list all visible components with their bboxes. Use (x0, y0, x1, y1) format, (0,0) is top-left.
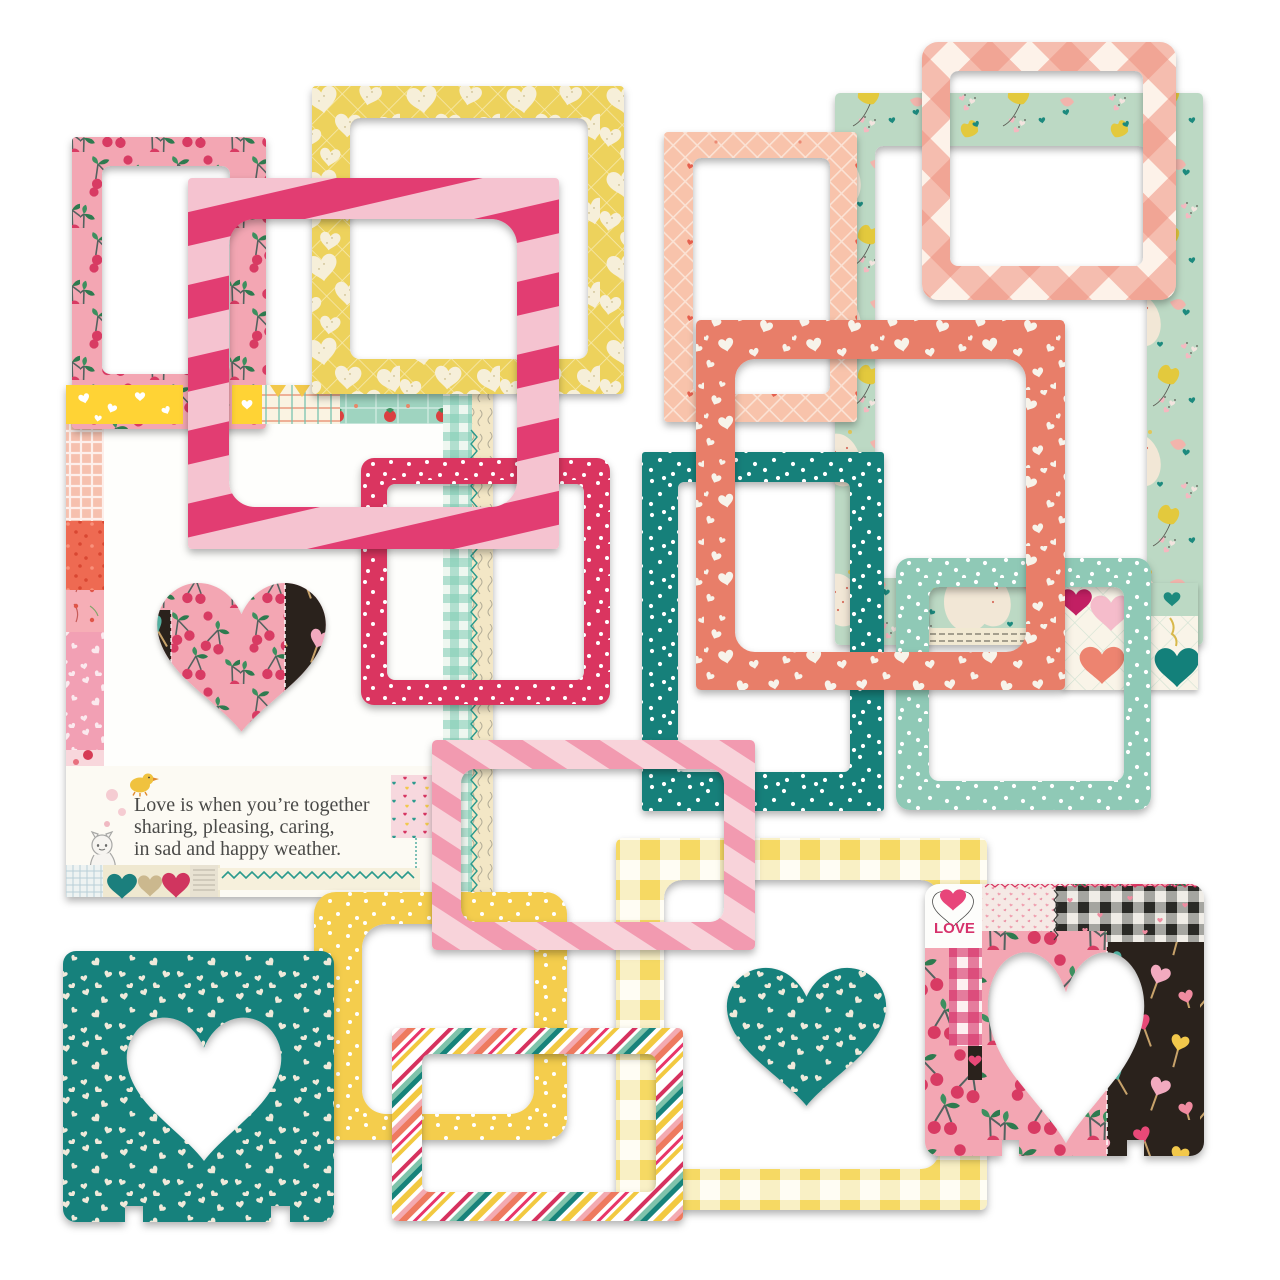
svg-text:LOVE: LOVE (934, 920, 975, 937)
svg-text:sharing, pleasing, caring,: sharing, pleasing, caring, (134, 816, 335, 838)
svg-text:Love is when you’re together: Love is when you’re together (134, 794, 370, 816)
svg-text:in sad and happy weather.: in sad and happy weather. (134, 838, 341, 860)
